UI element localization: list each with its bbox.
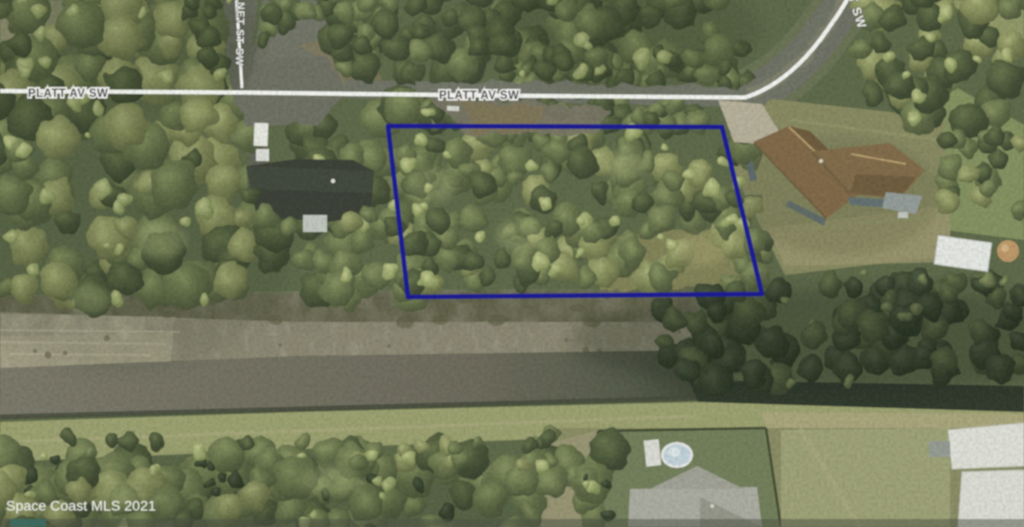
svg-text:Space Coast MLS 2021: Space Coast MLS 2021 <box>6 499 156 515</box>
